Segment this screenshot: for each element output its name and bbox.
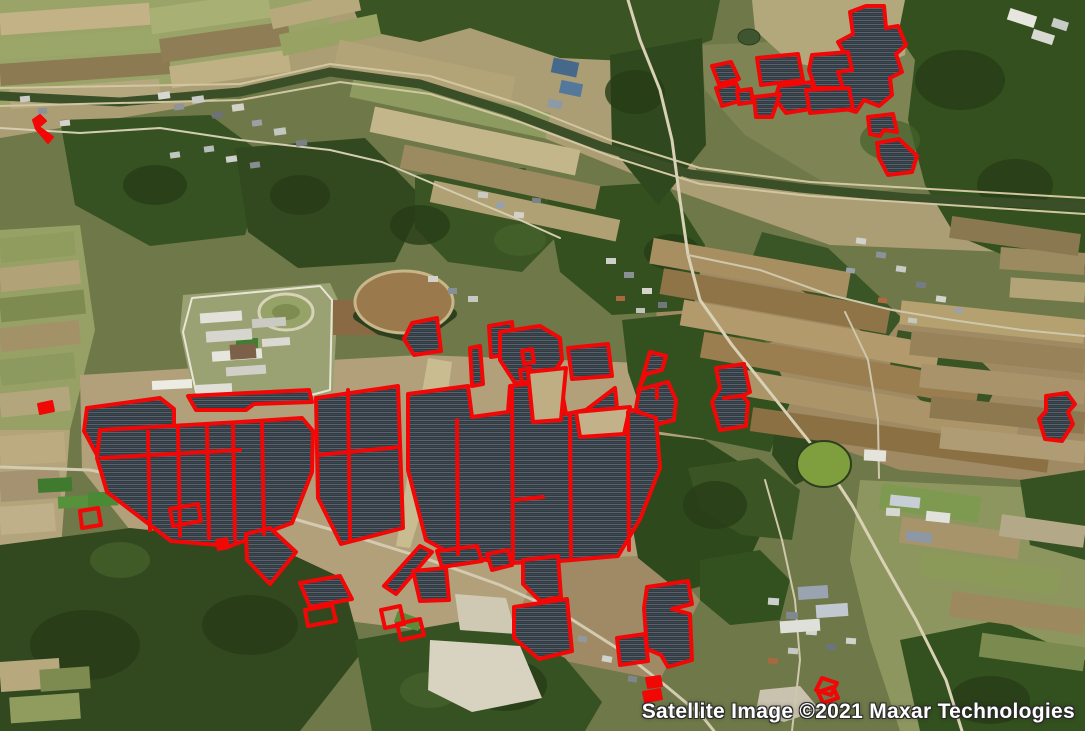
forest-shadows-4 — [123, 165, 187, 205]
buildings-16 — [496, 202, 505, 209]
detection-div-w-4 — [233, 424, 235, 540]
detection-div-c-3 — [570, 415, 571, 556]
forest-shadows-2 — [390, 205, 450, 245]
buildings-38 — [788, 648, 798, 655]
buildings-70 — [886, 508, 900, 517]
detection-c-bottom-c — [617, 634, 648, 665]
attribution-text: Satellite Image ©2021 Maxar Technologies — [642, 700, 1075, 724]
detection-div-w-2 — [178, 428, 180, 536]
buildings-63 — [20, 96, 30, 103]
school-grounds — [180, 283, 338, 400]
buildings-65 — [60, 120, 70, 127]
detection-div-w-1 — [148, 432, 150, 530]
buildings-66 — [428, 276, 438, 282]
detection-w-edge-dash — [38, 401, 54, 414]
fields-43 — [38, 477, 73, 493]
detection-s-sliver-c — [487, 550, 512, 570]
detection-n-dot-a — [522, 349, 534, 364]
fields-50 — [9, 693, 81, 724]
forest-shadows-8 — [683, 481, 747, 529]
detection-ne-left-a — [757, 54, 803, 85]
buildings-56 — [230, 343, 257, 360]
buildings-67 — [448, 288, 457, 294]
detection-ne-small-c — [868, 114, 897, 136]
buildings-18 — [532, 198, 541, 204]
detection-sw-sliver-a — [300, 576, 352, 607]
detection-div-w-3 — [207, 426, 209, 538]
detection-c-dash-a — [646, 676, 662, 688]
fields-40 — [0, 432, 66, 466]
buildings-68 — [468, 296, 478, 302]
buildings-21 — [642, 288, 652, 294]
detection-div-c-1 — [457, 420, 458, 554]
forest-shadows-6 — [202, 595, 298, 655]
buildings-42 — [816, 603, 849, 618]
satellite-image-viewport: Satellite Image ©2021 Maxar Technologies — [0, 0, 1085, 731]
fields-42 — [0, 503, 56, 535]
detection-ne-mid-b — [806, 88, 853, 113]
detection-n-small-a — [404, 318, 441, 355]
buildings-69 — [864, 449, 887, 461]
fields-44 — [58, 495, 89, 509]
buildings-19 — [606, 258, 616, 264]
detection-div-e-dash — [724, 396, 740, 398]
buildings-40 — [846, 638, 856, 645]
detection-div-c-2 — [512, 388, 513, 560]
pond-resort — [738, 29, 760, 45]
detection-div-cleft-v — [348, 390, 350, 540]
buildings-23 — [636, 308, 645, 313]
detection-s-triangle — [413, 568, 449, 601]
detection-c-left-col — [316, 386, 403, 544]
buildings-22 — [658, 302, 667, 308]
buildings-37 — [826, 644, 836, 651]
detection-c-notch-2 — [576, 407, 630, 437]
buildings-34 — [768, 598, 779, 606]
detection-ne-dot — [737, 89, 753, 104]
buildings-24 — [616, 296, 625, 301]
detection-w-dot — [216, 538, 229, 550]
buildings-35 — [786, 612, 798, 620]
detection-div-c-4 — [628, 412, 629, 550]
buildings-41 — [798, 585, 829, 600]
buildings-20 — [624, 272, 634, 278]
scene-canvas — [0, 0, 1085, 731]
buildings-15 — [478, 192, 488, 199]
fields-51 — [39, 666, 90, 691]
detection-n-sliver — [470, 346, 483, 386]
forest-shadows-14 — [90, 542, 150, 578]
buildings-64 — [38, 108, 47, 115]
detection-n-small-c — [568, 344, 612, 379]
detection-c-notch-1 — [528, 368, 566, 422]
buildings-17 — [514, 212, 524, 219]
detection-div-w-5 — [262, 421, 264, 534]
forest-shadows-3 — [270, 175, 330, 215]
forest-shadows-0 — [915, 50, 1005, 110]
pond-green — [797, 441, 851, 487]
buildings-39 — [768, 658, 778, 665]
